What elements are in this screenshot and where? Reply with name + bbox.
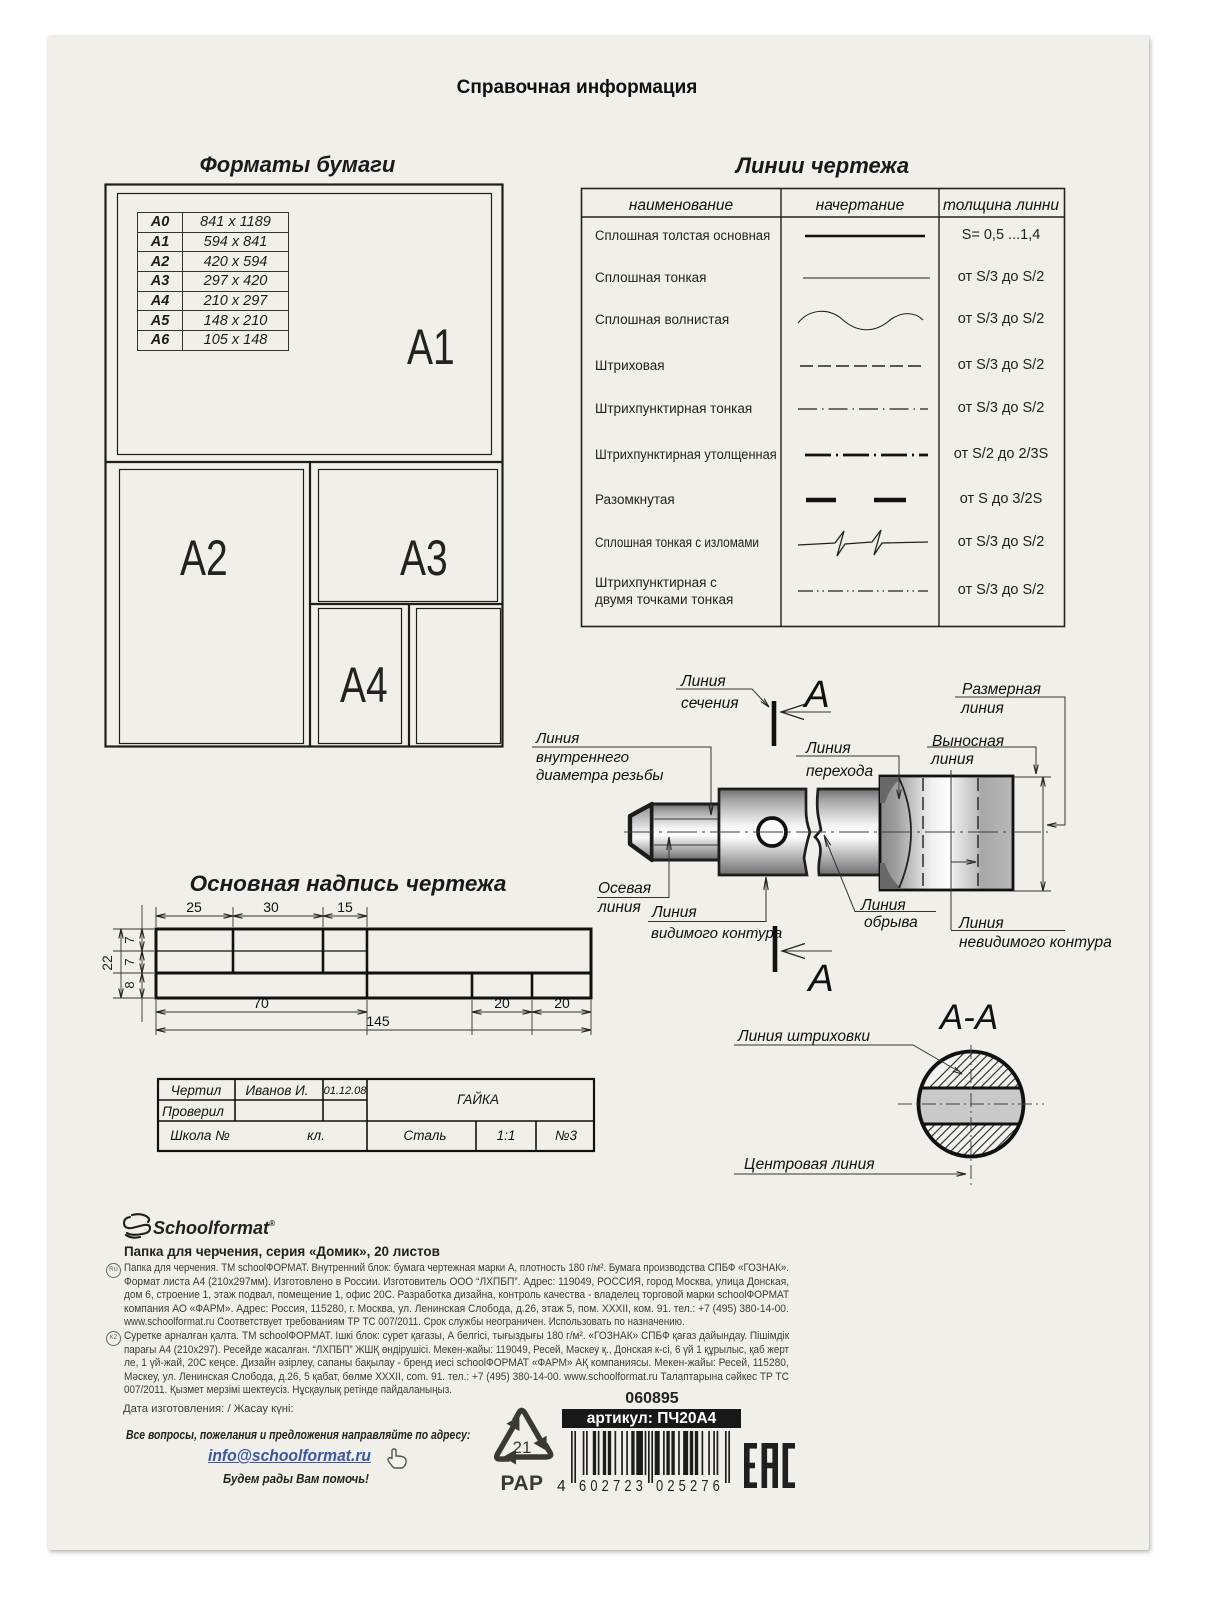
svg-text:01.12.08: 01.12.08 <box>324 1085 368 1097</box>
svg-text:145: 145 <box>366 1013 390 1029</box>
svg-text:Линия: Линия <box>651 904 697 921</box>
svg-text:025276: 025276 <box>656 1478 724 1493</box>
svg-text:Осевая: Осевая <box>598 880 651 897</box>
svg-text:Чертил: Чертил <box>171 1083 222 1098</box>
svg-text:перехода: перехода <box>806 763 873 780</box>
svg-text:невидимого контура: невидимого контура <box>959 934 1112 951</box>
svg-text:22: 22 <box>99 955 115 971</box>
svg-text:обрыва: обрыва <box>864 914 918 931</box>
svg-text:Выносная: Выносная <box>932 733 1004 750</box>
svg-text:Линия: Линия <box>805 740 851 757</box>
svg-text:диаметра резьбы: диаметра резьбы <box>536 767 663 784</box>
svg-text:А: А <box>802 674 829 716</box>
svg-text:Размерная: Размерная <box>962 681 1041 698</box>
svg-text:Иванов И.: Иванов И. <box>245 1083 308 1098</box>
svg-text:видимого контура: видимого контура <box>651 925 782 942</box>
svg-text:PAP: PAP <box>500 1472 543 1495</box>
svg-text:внутреннего: внутреннего <box>536 749 629 766</box>
svg-text:30: 30 <box>263 899 279 915</box>
svg-text:кл.: кл. <box>307 1128 325 1143</box>
svg-text:1:1: 1:1 <box>497 1128 516 1143</box>
svg-text:Школа №: Школа № <box>170 1128 230 1143</box>
svg-text:8: 8 <box>122 981 137 988</box>
svg-text:линия: линия <box>930 751 974 768</box>
svg-text:25: 25 <box>186 899 202 915</box>
svg-text:№3: №3 <box>555 1128 578 1143</box>
svg-text:Проверил: Проверил <box>162 1104 224 1119</box>
svg-text:Сталь: Сталь <box>404 1128 447 1143</box>
svg-text:Линия: Линия <box>535 730 579 747</box>
svg-text:ГАЙКА: ГАЙКА <box>457 1091 499 1107</box>
svg-text:Линия штриховки: Линия штриховки <box>737 1028 870 1045</box>
svg-text:602723: 602723 <box>579 1478 647 1493</box>
svg-text:Линия: Линия <box>680 673 726 690</box>
svg-text:21: 21 <box>513 1438 532 1457</box>
svg-text:А-А: А-А <box>938 998 998 1037</box>
svg-text:7: 7 <box>122 936 137 943</box>
svg-text:15: 15 <box>337 899 353 915</box>
svg-text:7: 7 <box>122 958 137 965</box>
svg-text:сечения: сечения <box>681 695 739 712</box>
svg-text:линия: линия <box>960 700 1004 717</box>
svg-text:Линия: Линия <box>958 915 1004 932</box>
svg-text:Центровая линия: Центровая линия <box>744 1156 875 1173</box>
svg-text:4: 4 <box>557 1478 566 1493</box>
svg-text:линия: линия <box>597 899 641 916</box>
